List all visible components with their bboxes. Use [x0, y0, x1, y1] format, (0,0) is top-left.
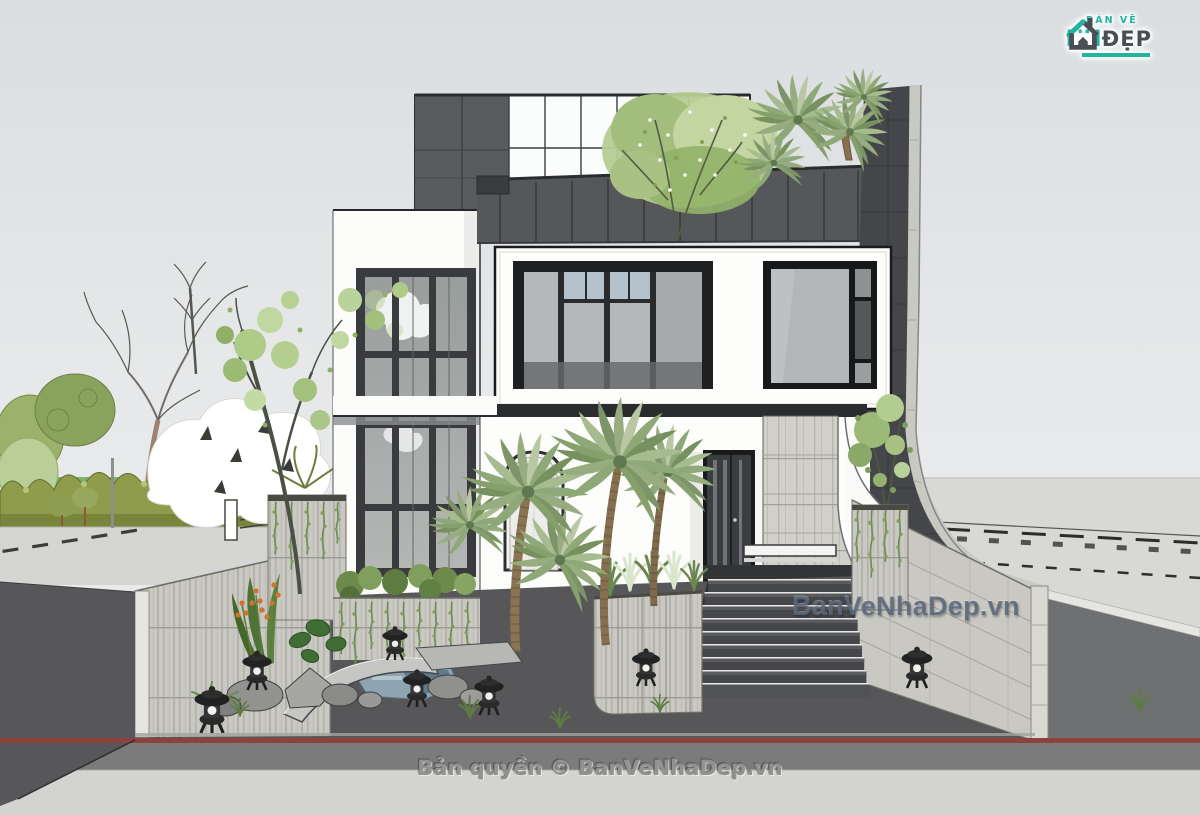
floating-white-volume [495, 247, 891, 409]
entrance-stairs [678, 579, 870, 697]
villa-render-screenshot: BanVeNhaDep.vn Bản quyền © BanVeNhaDep.v… [0, 0, 1200, 815]
street-pole [111, 458, 114, 528]
entrance-right-planter [852, 505, 908, 610]
entry-railing [744, 545, 836, 556]
ribbon-window-left [513, 261, 713, 389]
ribbon-window-right [763, 261, 877, 389]
scene-render [0, 0, 1200, 815]
curb-red-line [0, 738, 1200, 743]
